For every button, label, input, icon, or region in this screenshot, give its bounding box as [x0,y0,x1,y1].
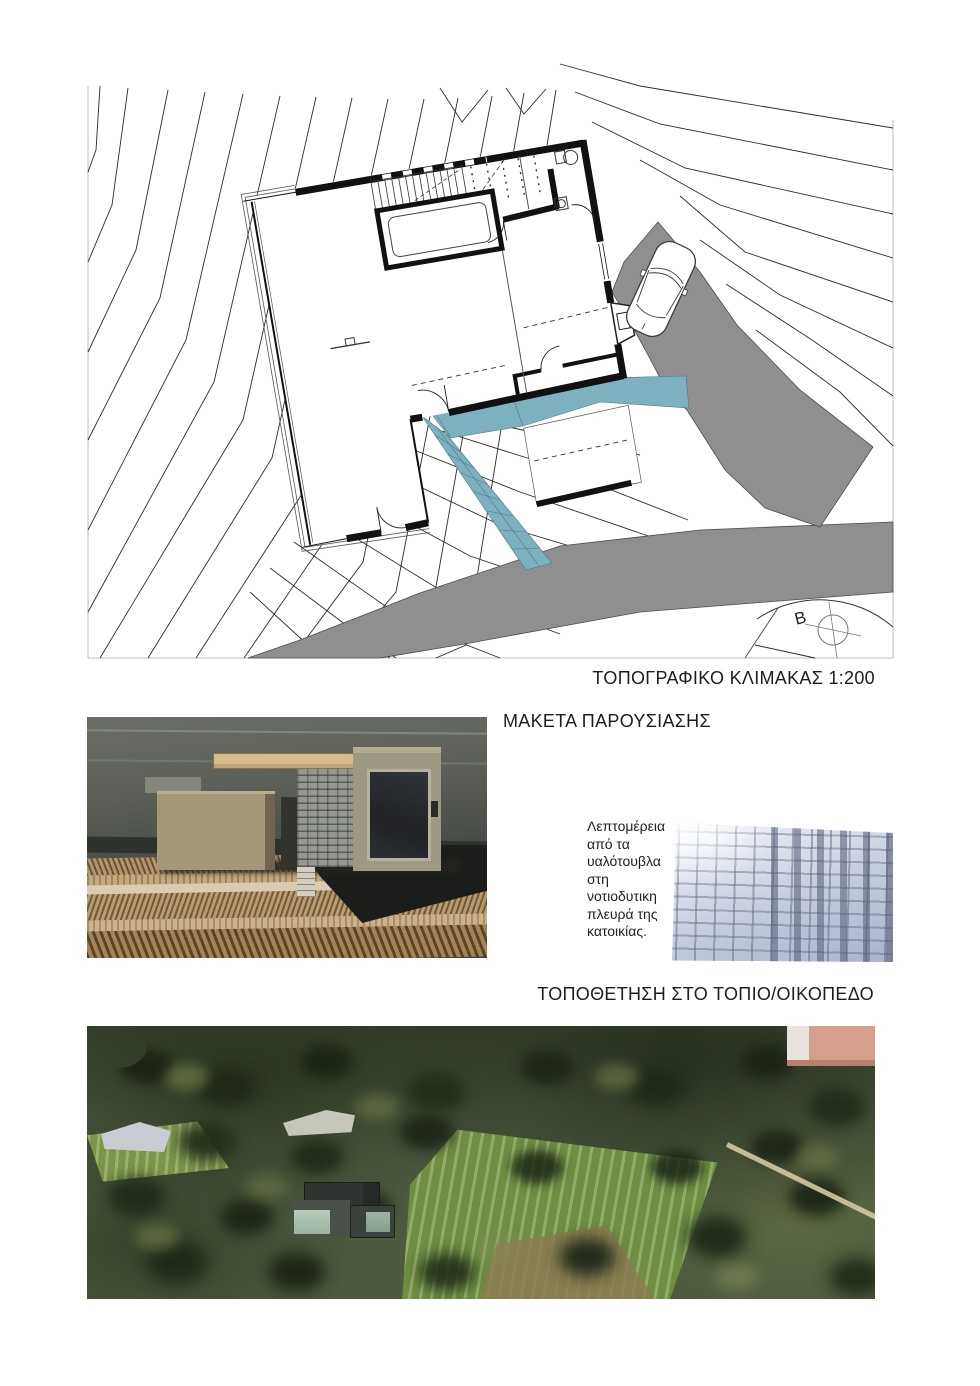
model-wood-beam [213,753,355,769]
glass-highlight [672,812,893,962]
model-stair-strip [297,867,315,897]
building-glass-band-right [366,1212,390,1232]
neighbor-house-pink [787,1026,875,1066]
cardboard-layer [87,924,487,958]
model-door-slot [281,797,297,867]
lower-road [248,522,893,658]
topographic-site-plan: B [86,8,895,660]
model-brick-wall [297,765,353,867]
building-glass-band-left [294,1210,330,1234]
north-indicator: B [745,600,893,658]
proposed-building-render [292,1182,394,1238]
dirt-road [726,1142,875,1234]
glass-block-detail-image [672,812,893,962]
north-label: B [793,608,809,629]
siting-title: ΤΟΠΟΘΕΤΗΣΗ ΣΤΟ ΤΟΠΙΟ/ΟΙΚΟΠΕΔΟ [537,984,874,1005]
glass-detail-caption: Λεπτομέρεια από τα υαλότουβλα στη νοτιοδ… [587,818,682,941]
aerial-site-photo [87,1026,875,1299]
model-cardboard-volume [157,791,275,870]
house-plan [241,133,661,554]
window-frame-line [87,729,487,734]
olive-trees-highlight [87,1026,147,1068]
model-photo [87,717,487,958]
model-side-slot [431,801,438,817]
neighbor-house-center [283,1110,355,1136]
model-title: ΜΑΚΕΤΑ ΠΑΡΟΥΣΙΑΣΗΣ [503,711,711,732]
model-window-opening [367,769,431,861]
topo-plan-title: ΤΟΠΟΓΡΑΦΙΚΟ ΚΛΙΜΑΚΑΣ 1:200 [592,668,875,689]
